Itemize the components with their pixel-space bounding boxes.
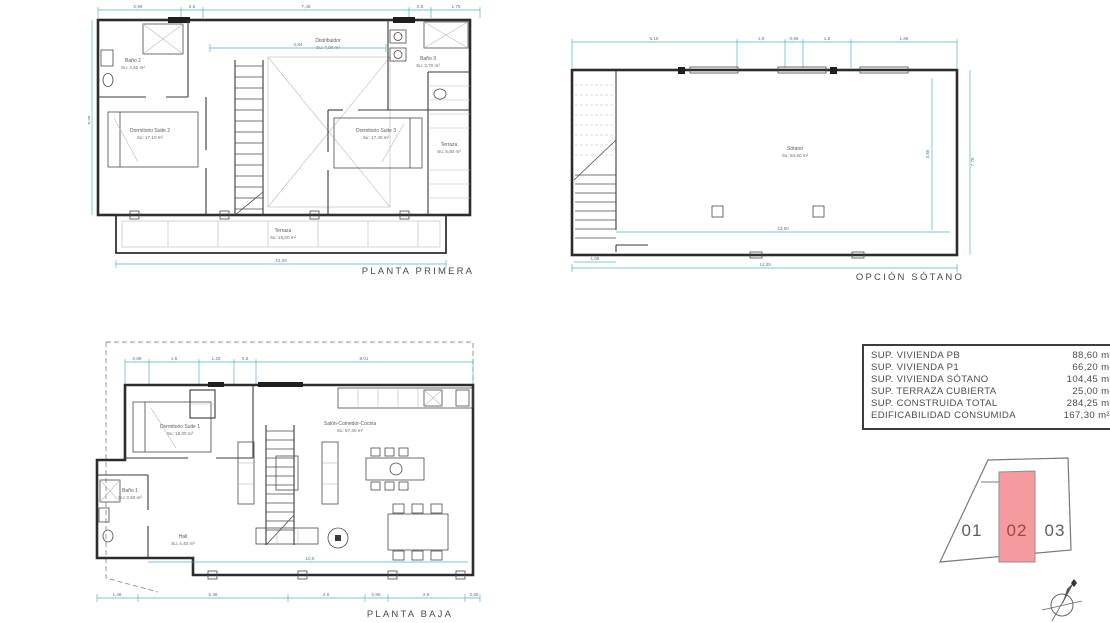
- dim-label: 1,48: [113, 592, 122, 597]
- wall-lintel: [168, 17, 190, 23]
- row-label: SUP. VIVIENDA P1: [871, 362, 959, 374]
- dim-label: 0,85: [372, 592, 381, 597]
- row-value: 167,30 m²t: [1064, 410, 1110, 422]
- fridge: [456, 390, 469, 406]
- row-label: SUP. TERRAZA CUBIERTA: [871, 386, 997, 398]
- room-label: Baño 1: [122, 488, 138, 494]
- room-label: Baño 2: [125, 58, 141, 64]
- dim-label: 1,8: [758, 36, 765, 41]
- room-area-label: Su: 5,50 m²: [437, 149, 461, 154]
- dim-label: 12,06: [275, 258, 287, 263]
- dim-chain-bottom: 1,48 5,48 2,8 0,85 2,8 0,55: [97, 592, 480, 602]
- room-label: Terraza: [275, 228, 292, 234]
- dim-label: 1,85: [900, 36, 909, 41]
- toilet: [103, 530, 113, 542]
- north-compass-icon: [1030, 578, 1100, 622]
- sotano-room: Sótano Su: 84,50 m²: [782, 146, 809, 158]
- room-label: Terraza: [441, 142, 458, 148]
- bathroom-1: Baño 1 Su: 3,50 m²: [97, 475, 148, 558]
- sink: [99, 508, 109, 522]
- dim-label: 2,8: [423, 592, 430, 597]
- dim-label: 1,06: [591, 256, 600, 261]
- table-row: SUP. CONSTRUIDA TOTAL 284,25 m²: [871, 398, 1110, 410]
- exterior-wall: [98, 20, 470, 215]
- sink: [101, 50, 113, 66]
- dim-label: 0,88: [133, 356, 142, 361]
- living-dining-kitchen: Salón-Comedor-Cocina Su: 57,40 m²: [238, 388, 473, 560]
- room-label: Hall: [179, 534, 188, 540]
- column: [712, 206, 723, 217]
- plan-planta-primera: 2,99 0,8 7,45 0,8 1,75 6,56 Baño 2 Su: 4…: [88, 2, 488, 280]
- row-label: SUP. CONSTRUIDA TOTAL: [871, 398, 998, 410]
- table-row: SUP. VIVIENDA SÓTANO 104,45 m²: [871, 374, 1110, 386]
- hall: Hall Su: 4,40 m²: [171, 534, 195, 546]
- dim-left: 6,56: [88, 20, 92, 215]
- dim-label: 1,8: [171, 356, 178, 361]
- room-area-label: Su: 3,70 m²: [416, 63, 440, 68]
- plan-planta-baja: 0,88 1,8 1,25 0,8 8,01 Dormitorio Suite …: [88, 330, 488, 622]
- sofa: [322, 442, 338, 504]
- kitchen-island: [366, 458, 424, 480]
- dim-label: 2,8: [323, 592, 330, 597]
- blueprint-sheet: { "sheet": { "line_color": "#323232", "d…: [0, 0, 1110, 623]
- terraza-bottom: Terraza Su: 15,00 m²: [116, 211, 446, 253]
- dim-bottom: 13,60 14,35: [572, 226, 957, 272]
- room-area-label: Su: 17,10 m²: [137, 135, 164, 140]
- dim-label: 8,01: [360, 356, 369, 361]
- distribuidor: Distribuidor Su: 7,00 m² 4,84: [210, 38, 386, 52]
- dim-label: 7,45: [302, 4, 311, 9]
- room-area-label: Su: 15,30 m²: [167, 431, 194, 436]
- pilaster: [678, 67, 685, 74]
- dim-label: 1,8: [824, 36, 831, 41]
- dim-chain-top: 2,99 0,8 7,45 0,8 1,75: [98, 4, 480, 18]
- bedroom-suite-3: Dormitorio Suite 3 Su: 17,40 m²: [328, 110, 422, 215]
- row-value: 25,00 m²: [1072, 386, 1110, 398]
- room-area-label: Su: 15,00 m²: [270, 235, 297, 240]
- parcel-02-label: 02: [1007, 521, 1028, 540]
- row-label: SUP. VIVIENDA SÓTANO: [871, 374, 989, 386]
- wall-lintel: [208, 382, 224, 387]
- dining-table: [388, 514, 448, 550]
- parcel-02-highlight: [999, 471, 1035, 562]
- column: [813, 206, 824, 217]
- dim-label: 4,84: [294, 42, 303, 47]
- hob: [390, 463, 402, 475]
- dim-chain-top: 0,88 1,8 1,25 0,8 8,01: [125, 356, 473, 384]
- room-label: Sótano: [787, 146, 803, 152]
- plan-title-baja: PLANTA BAJA: [367, 609, 453, 620]
- parcel-03-label: 03: [1045, 521, 1066, 540]
- dim-label: 2,99: [134, 4, 143, 9]
- room-area-label: Su: 7,00 m²: [316, 45, 340, 50]
- row-label: EDIFICABILIDAD CONSUMIDA: [871, 410, 1016, 422]
- toilet: [103, 74, 113, 87]
- dim-label: 5,48: [209, 592, 218, 597]
- dim-label: 0,55: [470, 592, 479, 597]
- pilaster: [830, 67, 837, 74]
- plan-opcion-sotano: 6,16 1,8 0,66 1,8 1,85 1,06 Sótan: [560, 30, 980, 282]
- row-value: 104,45 m²: [1067, 374, 1110, 386]
- room-label: Baño 3: [420, 56, 436, 62]
- row-value: 88,60 m²: [1072, 350, 1110, 362]
- row-label: SUP. VIVIENDA PB: [871, 350, 960, 362]
- dim-chain-top: 6,16 1,8 0,66 1,8 1,85: [572, 36, 957, 68]
- wall-lintel: [258, 382, 303, 387]
- bathroom-2: Baño 2 Su: 4,40 m²: [98, 20, 188, 97]
- column-core: [335, 535, 341, 541]
- wall-lintel: [393, 17, 415, 23]
- bedroom-suite-1: Dormitorio Suite 1 Su: 15,30 m²: [125, 385, 253, 458]
- sink: [390, 48, 406, 61]
- dim-label: 0,66: [790, 36, 799, 41]
- room-area-label: Su: 4,40 m²: [121, 65, 145, 70]
- plan-title-sotano: OPCIÓN SÓTANO: [856, 272, 964, 282]
- room-area-label: Su: 84,50 m²: [782, 153, 809, 158]
- room-area-label: Su: 3,50 m²: [118, 495, 142, 500]
- parcel-location-diagram: 01 02 03: [925, 456, 1107, 574]
- dim-label: 7,75: [970, 157, 975, 166]
- dim-label: 6,56: [88, 115, 91, 124]
- dim-label: 0,8: [417, 4, 424, 9]
- staircase: 1,06: [574, 70, 648, 262]
- room-area-label: Su: 57,40 m²: [337, 428, 364, 433]
- dim-label: 10,6: [306, 556, 315, 561]
- dim-label: 14,35: [759, 262, 771, 267]
- room-label: Dormitorio Suite 3: [356, 128, 396, 134]
- table-row: SUP. TERRAZA CUBIERTA 25,00 m²: [871, 386, 1110, 398]
- row-value: 284,25 m²: [1067, 398, 1110, 410]
- sofa: [256, 528, 318, 544]
- surface-area-table: SUP. VIVIENDA PB 88,60 m² SUP. VIVIENDA …: [862, 344, 1110, 430]
- sink: [390, 30, 406, 43]
- room-label: Distribuidor: [315, 38, 341, 44]
- staircase: [235, 60, 263, 215]
- dim-label: 0,8: [242, 356, 249, 361]
- sofa: [238, 442, 254, 504]
- table-row: SUP. VIVIENDA PB 88,60 m²: [871, 350, 1110, 362]
- room-area-label: Su: 4,40 m²: [171, 541, 195, 546]
- dim-label: 1,25: [212, 356, 221, 361]
- plan-title-primera: PLANTA PRIMERA: [362, 266, 474, 277]
- parcel-01-label: 01: [962, 521, 983, 540]
- row-value: 66,20 m²: [1072, 362, 1110, 374]
- dim-label: 13,60: [777, 226, 789, 231]
- bed: [334, 118, 422, 168]
- dim-label: 0,8: [189, 4, 196, 9]
- room-area-label: Su: 17,40 m²: [363, 135, 390, 140]
- dim-label: 4,65: [925, 149, 930, 158]
- bedroom-suite-2: Dormitorio Suite 2 Su: 17,10 m²: [108, 97, 206, 215]
- dim-label: 6,16: [650, 36, 659, 41]
- room-label: Salón-Comedor-Cocina: [324, 421, 376, 427]
- dim-right: 7,75 4,65: [925, 70, 975, 255]
- staircase: [266, 425, 294, 545]
- dim-inner: 10,6: [148, 556, 468, 562]
- table-row: SUP. VIVIENDA P1 66,20 m²: [871, 362, 1110, 374]
- bathroom-3: Baño 3 Su: 3,70 m²: [328, 20, 470, 110]
- dim-label: 1,75: [452, 4, 461, 9]
- room-label: Dormitorio Suite 2: [130, 128, 170, 134]
- toilet: [434, 89, 446, 99]
- room-label: Dormitorio Suite 1: [160, 424, 200, 430]
- exterior-wall: [572, 70, 957, 255]
- table-row: EDIFICABILIDAD CONSUMIDA 167,30 m²t: [871, 410, 1110, 422]
